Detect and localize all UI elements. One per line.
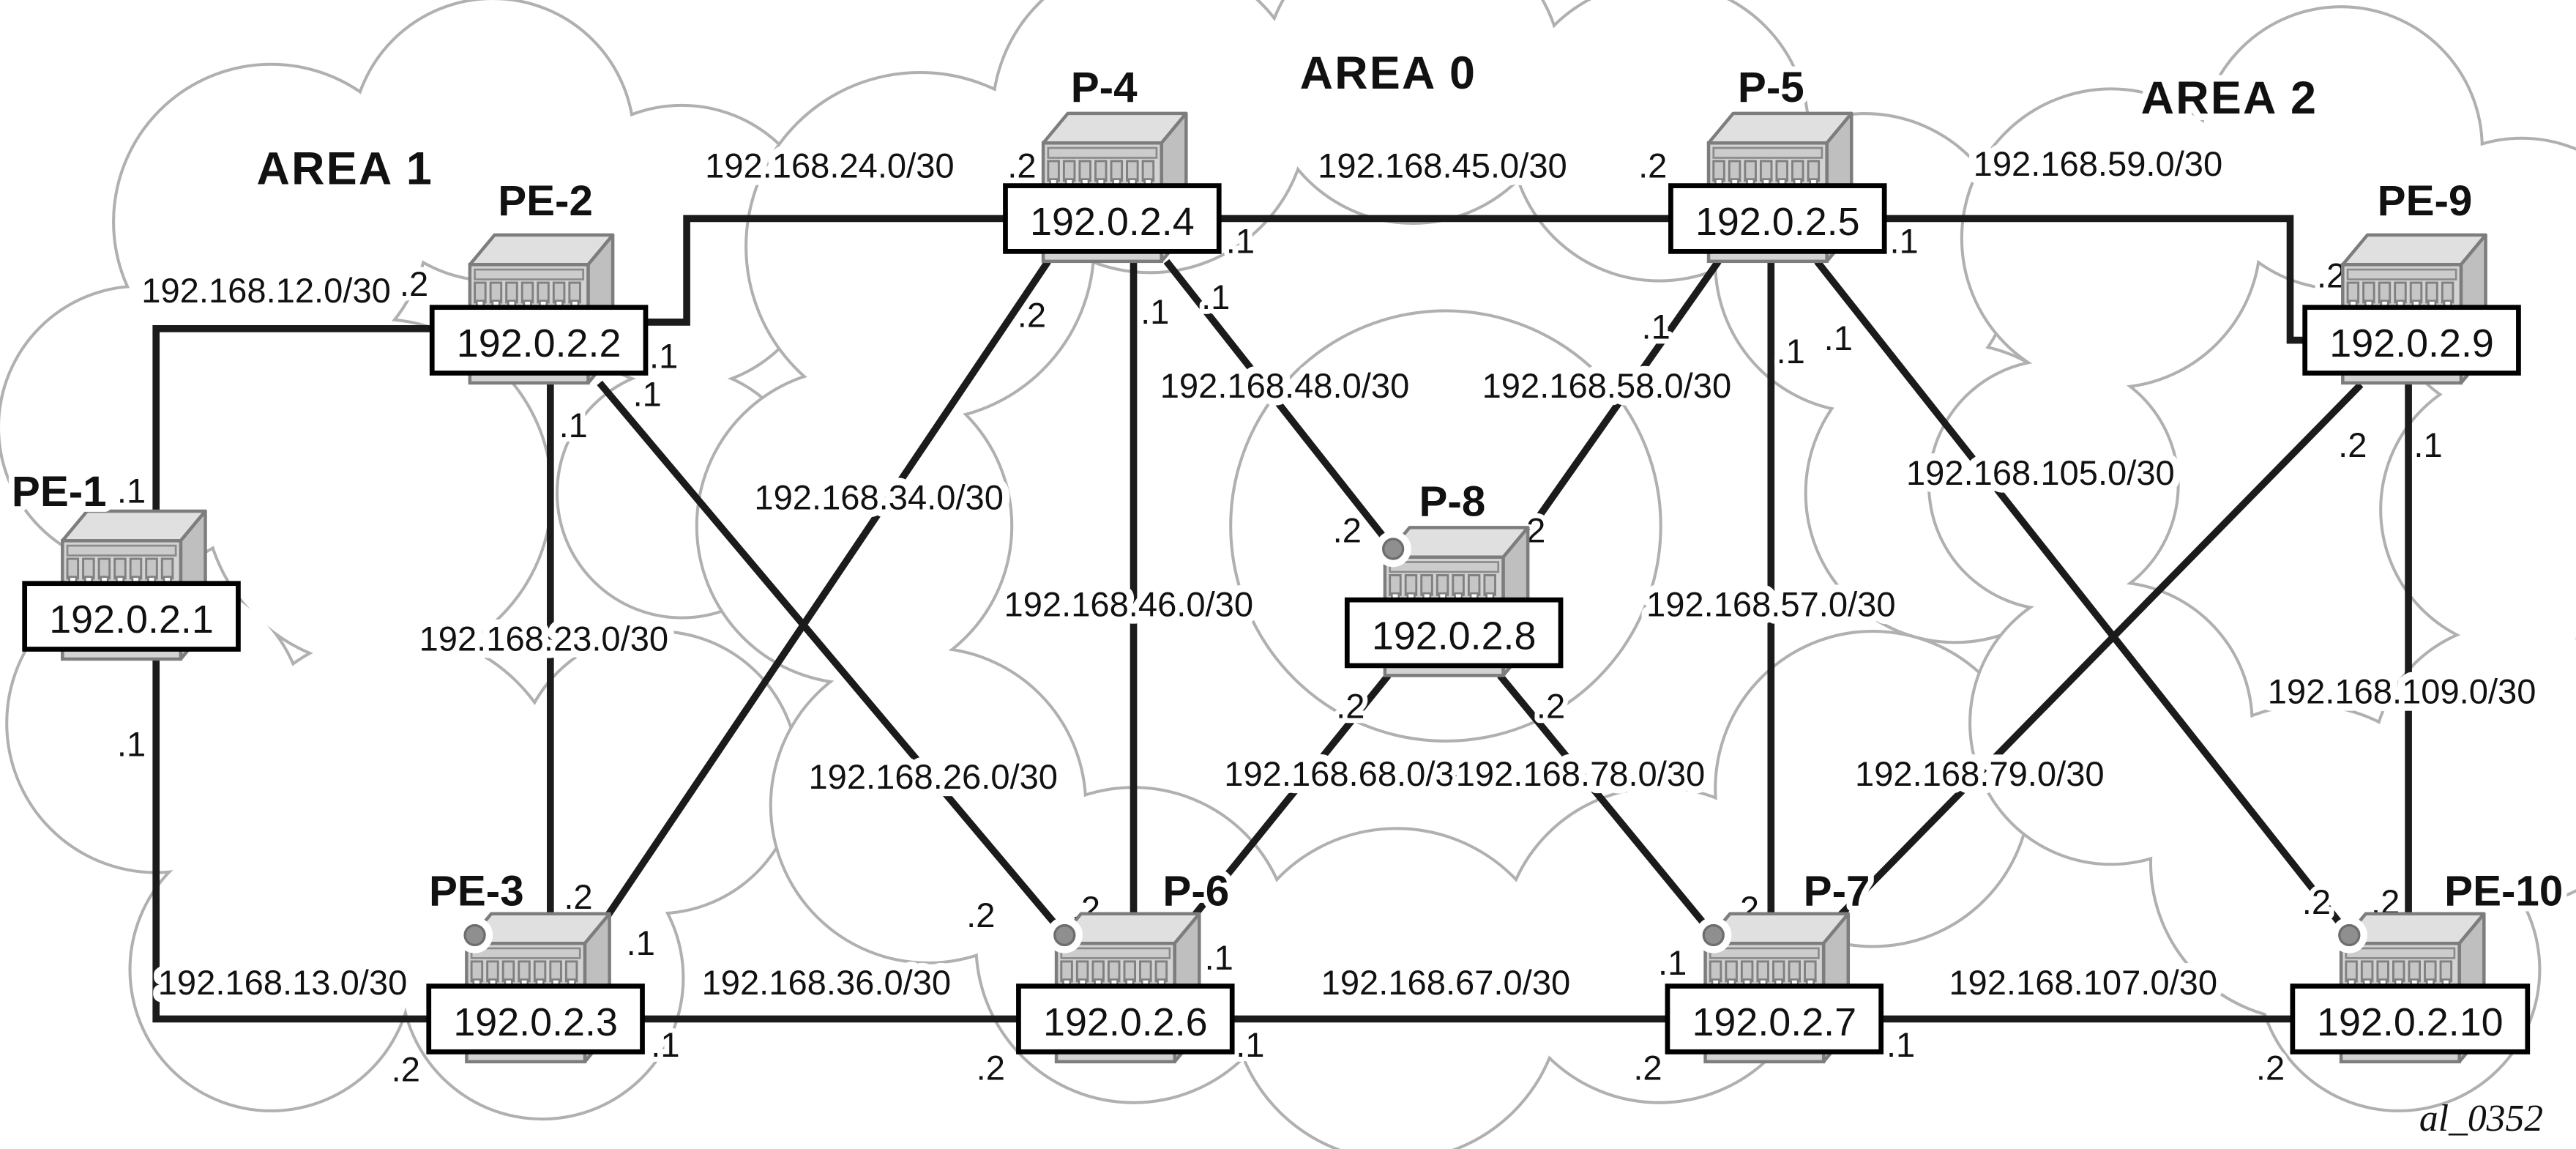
interface-address-label: .2 [2302,882,2331,921]
router-ip-label: 192.0.2.5 [1695,200,1860,244]
router-name-label: PE-10 [2444,868,2563,915]
interface-address-label: .2 [392,1050,420,1089]
line-card-slot [130,559,141,579]
line-card-slot [1745,161,1756,181]
icon-top-band [2346,948,2454,958]
line-card-slot [2364,283,2375,302]
line-card-slot [488,962,499,981]
link-subnet-label: 192.168.24.0/30 [705,146,955,185]
router-name-label: PE-2 [498,177,593,225]
interface-address-label: .1 [1777,332,1805,371]
line-card-slot [475,283,486,302]
line-card-slot [2346,962,2357,981]
line-card-slot [522,283,533,302]
line-card-slot [2427,283,2438,302]
line-card-slot [1390,575,1401,595]
area-label: AREA 2 [2141,72,2318,124]
line-card-slot [1808,161,1819,181]
line-card-slot [1792,161,1803,181]
port-dot [465,926,485,945]
line-card-slot [534,962,545,981]
line-card-slot [2362,962,2372,981]
line-card-slot [1048,161,1059,181]
cloud-bump-fill [698,370,1010,682]
router-ip-label: 192.0.2.6 [1043,1000,1208,1044]
line-card-slot [503,962,514,981]
line-card-slot [1758,962,1769,981]
line-card-slot [1714,161,1725,181]
line-card-slot [2442,283,2453,302]
line-card-slot [1729,161,1740,181]
network-topology-figure: AREA 1AREA 0AREA 2192.168.12.0/30.1.2192… [0,0,2576,1149]
interface-address-label: .2 [400,264,428,303]
line-card-slot [1061,962,1072,981]
link-subnet-label: 192.168.13.0/30 [158,963,408,1002]
line-card-slot [1156,962,1167,981]
icon-top-band [1061,948,1170,958]
link-subnet-label: 192.168.78.0/30 [1456,754,1706,793]
link-subnet-label: 192.168.23.0/30 [419,620,669,658]
line-card-slot [1485,575,1496,595]
interface-address-label: .1 [1658,943,1687,982]
link-subnet-label: 192.168.57.0/30 [1646,585,1896,624]
icon-top-band [471,948,580,958]
line-card-slot [1422,575,1433,595]
line-card-slot [519,962,530,981]
line-card-slot [1405,575,1416,595]
interface-address-label: .1 [2413,425,2442,464]
line-card-slot [2411,283,2422,302]
line-card-slot [67,559,78,579]
line-card-slot [1773,962,1784,981]
line-card-slot [1093,962,1104,981]
router-name-label: P-4 [1071,64,1138,111]
line-card-slot [570,283,580,302]
interface-address-label: .2 [1633,1048,1662,1087]
port-dot-icon [1695,917,1731,953]
interface-address-label: .1 [1642,307,1670,346]
line-card-slot [507,283,518,302]
line-card-slot [566,962,577,981]
port-dot [2340,926,2359,945]
line-card-slot [538,283,549,302]
line-card-slot [1108,962,1119,981]
figure-id-label: al_0352 [2419,1098,2543,1139]
router-ip-label: 192.0.2.8 [1372,614,1537,658]
port-dot [1703,926,1723,945]
router-ip-label: 192.0.2.2 [457,321,621,365]
interface-address-label: .2 [1018,296,1046,335]
line-card-slot [1095,161,1106,181]
port-dot [1384,539,1403,559]
interface-address-label: .1 [1889,222,1918,261]
port-dot-icon [1047,917,1083,953]
port-dot-icon [457,917,493,953]
line-card-slot [553,283,564,302]
router-name-label: PE-3 [429,868,524,915]
line-card-slot [2378,962,2389,981]
interface-address-label: .1 [627,923,655,962]
interface-address-label: .1 [1824,319,1853,357]
interface-address-label: .2 [2256,1048,2285,1087]
icon-top-band [1710,948,1818,958]
link-subnet-label: 192.168.105.0/30 [1906,453,2175,492]
line-card-slot [471,962,482,981]
icon-top-band [1714,148,1822,157]
line-card-slot [1140,962,1151,981]
line-card-slot [1726,962,1737,981]
line-card-slot [1761,161,1772,181]
line-card-slot [83,559,94,579]
line-card-slot [1143,161,1154,181]
line-card-slot [1064,161,1075,181]
area-label: AREA 0 [1300,48,1477,99]
link-subnet-label: 192.168.68.0/30 [1224,754,1474,793]
interface-address-label: .1 [1886,1025,1915,1064]
line-card-slot [1789,962,1800,981]
interface-address-label: .1 [117,724,146,763]
router-ip-label: 192.0.2.7 [1692,1000,1856,1044]
line-card-slot [2409,962,2420,981]
line-card-slot [1077,962,1088,981]
line-card-slot [2395,283,2406,302]
line-card-slot [2393,962,2404,981]
network-topology-diagram: AREA 1AREA 0AREA 2192.168.12.0/30.1.2192… [0,0,2576,1149]
router-name-label: P-7 [1804,868,1870,915]
interface-address-label: .1 [559,406,588,445]
interface-address-label: .1 [117,472,146,510]
link-subnet-label: 192.168.46.0/30 [1004,585,1254,624]
router-name-label: P-5 [1738,64,1804,111]
line-card-slot [2425,962,2436,981]
line-card-slot [2441,962,2452,981]
line-card-slot [490,283,501,302]
link-subnet-label: 192.168.26.0/30 [808,757,1058,796]
line-card-slot [99,559,110,579]
line-card-slot [1437,575,1448,595]
port-dot-icon [1375,531,1411,567]
router-ip-label: 192.0.2.4 [1030,200,1195,244]
interface-address-label: .1 [1205,938,1233,977]
line-card-slot [2379,283,2390,302]
router-name-label: PE-1 [12,468,107,516]
interface-address-label: .1 [633,374,662,413]
link-subnet-label: 192.168.48.0/30 [1160,366,1410,405]
line-card-slot [2348,283,2359,302]
link-subnet-label: 192.168.45.0/30 [1318,146,1567,185]
port-dot-icon [2332,917,2367,953]
interface-address-label: .2 [1333,511,1362,550]
line-card-slot [1805,962,1816,981]
router-name-label: PE-9 [2378,177,2473,225]
link-subnet-label: 192.168.67.0/30 [1321,963,1571,1002]
interface-address-label: .1 [1201,278,1230,316]
icon-top-band [67,546,176,555]
line-card-slot [1777,161,1788,181]
router-name-label: P-6 [1162,868,1229,915]
link-subnet-label: 192.168.109.0/30 [2268,672,2536,711]
interface-address-label: .2 [1007,146,1036,185]
line-card-slot [162,559,173,579]
interface-address-label: .1 [649,337,678,376]
line-card-slot [1468,575,1479,595]
icon-top-band [475,269,583,279]
link-subnet-label: 192.168.34.0/30 [754,478,1004,517]
link-subnet-label: 192.168.12.0/30 [141,271,391,310]
interface-address-label: .1 [1140,292,1169,331]
line-card-slot [1710,962,1721,981]
router-ip-label: 192.0.2.1 [49,598,214,642]
line-card-slot [1127,161,1138,181]
interface-address-label: .2 [1537,687,1565,726]
interface-address-label: .1 [1236,1025,1264,1064]
line-card-slot [1124,962,1135,981]
link-subnet-label: 192.168.107.0/30 [1949,963,2217,1002]
area-label: AREA 1 [257,143,434,194]
link-pe-3-p-6: 192.168.36.0/30.1.2 [643,963,1019,1087]
router-name-label: P-8 [1419,478,1486,526]
interface-address-label: .2 [1336,687,1364,726]
line-card-slot [1111,161,1122,181]
interface-address-label: .2 [977,1048,1005,1087]
interface-address-label: .2 [2338,425,2367,464]
line-card-slot [1080,161,1091,181]
icon-top-band [1048,148,1157,157]
icon-top-band [1390,562,1498,572]
line-card-slot [1741,962,1752,981]
link-subnet-label: 192.168.79.0/30 [1855,754,2105,793]
line-card-slot [550,962,561,981]
interface-address-label: .1 [651,1025,679,1064]
line-card-slot [1453,575,1464,595]
line-card-slot [115,559,126,579]
link-subnet-label: 192.168.36.0/30 [702,963,952,1002]
line-card-slot [146,559,157,579]
router-ip-label: 192.0.2.3 [453,1000,618,1044]
link-subnet-label: 192.168.58.0/30 [1482,366,1732,405]
interface-address-label: .2 [966,896,995,934]
icon-top-band [2348,269,2456,279]
interface-address-label: .2 [1638,146,1667,185]
router-ip-label: 192.0.2.9 [2329,321,2494,365]
link-subnet-label: 192.168.59.0/30 [1974,144,2223,183]
interface-address-label: .1 [1226,222,1255,261]
port-dot [1055,926,1075,945]
interface-address-label: .2 [564,877,592,916]
router-ip-label: 192.0.2.10 [2317,1000,2504,1044]
